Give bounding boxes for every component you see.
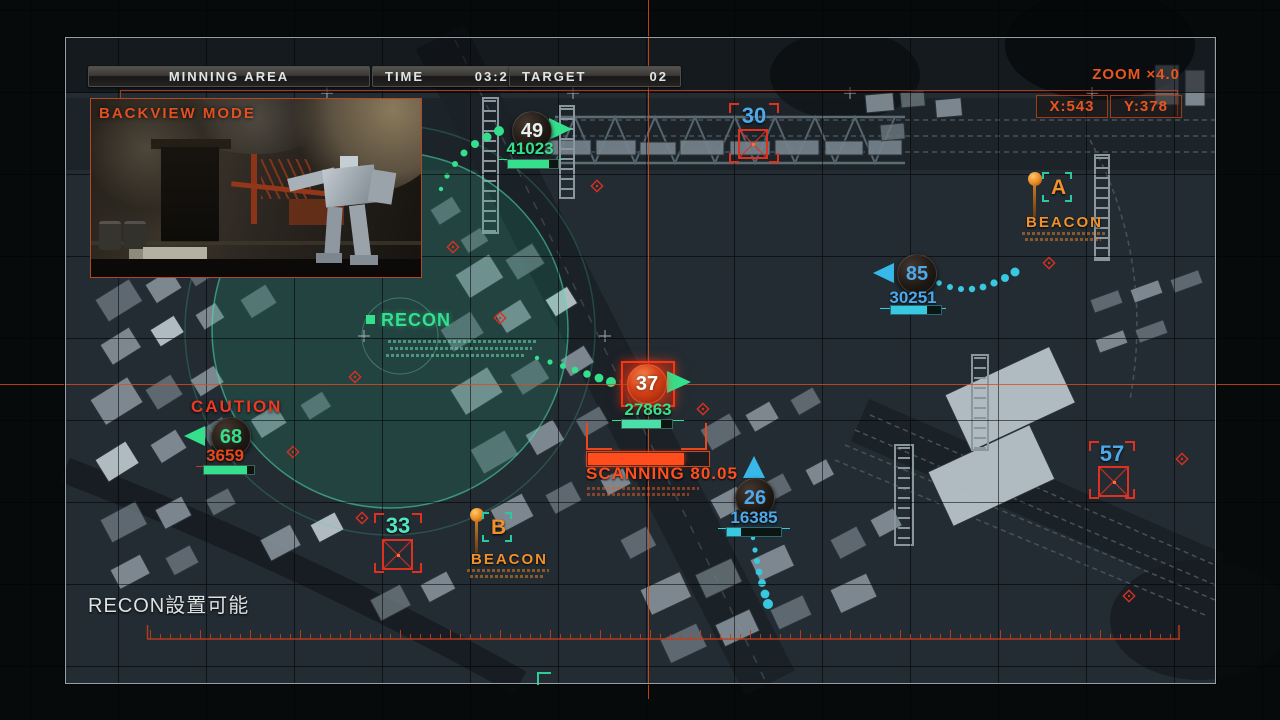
target-marker-33: 33: [374, 513, 422, 573]
fineprint: [390, 347, 532, 350]
target-number: 33: [374, 515, 422, 537]
fineprint: [1025, 238, 1101, 241]
status-message: RECON設置可能: [88, 589, 249, 618]
game-screen: { "header": { "area": "MINNING AREA", "t…: [0, 0, 1280, 720]
target-count: 02: [650, 69, 668, 84]
unit-gauge: [203, 465, 255, 475]
area-title-bar: MINNING AREA: [88, 66, 370, 87]
fineprint: [467, 569, 549, 572]
time-bar: TIME 03:20: [372, 66, 531, 87]
beacon-label: BEACON: [1026, 214, 1103, 231]
target-x-icon: [1098, 466, 1129, 497]
fineprint: [386, 354, 524, 357]
zoom-level-label: ZOOM ×4.0: [1058, 66, 1180, 83]
direction-flag-left-icon: [873, 263, 894, 283]
target-label: TARGET: [522, 69, 586, 84]
unit-number: 26: [744, 487, 766, 510]
target-bar: TARGET 02: [509, 66, 681, 87]
scan-bracket-right: [681, 423, 707, 450]
unit-gauge: [726, 527, 782, 537]
crosshair-vertical: [648, 0, 649, 699]
beacon-pin-stem: [475, 521, 478, 553]
direction-flag-up-icon: [743, 456, 765, 478]
fineprint: [470, 575, 544, 578]
direction-flag-right-icon: [549, 118, 572, 140]
beacon-letter: B: [491, 517, 506, 538]
direction-flag-left-icon: [184, 426, 205, 446]
recon-label: RECON: [381, 310, 451, 331]
unit-value: 27863: [612, 401, 684, 421]
unit-gauge: [890, 305, 942, 315]
beacon-pin-icon: [1028, 172, 1042, 186]
scanning-label: SCANNING 80.05: [586, 464, 738, 484]
target-marker-30: 30: [729, 103, 779, 163]
unit-number: 37: [636, 373, 658, 396]
unit-gauge: [621, 419, 673, 429]
unit-value: 16385: [718, 509, 790, 529]
area-name: MINNING AREA: [169, 69, 289, 84]
unit-gauge: [507, 159, 559, 169]
cursor-y-readout: Y:378: [1110, 95, 1182, 118]
fineprint: [388, 340, 538, 343]
top-ruler-line: [120, 90, 1178, 91]
beacon-letter: A: [1051, 177, 1066, 198]
beacon-pin-stem: [1033, 185, 1036, 217]
target-x-icon: [738, 129, 768, 159]
backview-title: BACKVIEW MODE: [99, 105, 256, 122]
mech: [302, 151, 407, 269]
crane-mast: [251, 154, 257, 224]
time-label: TIME: [385, 69, 424, 84]
barrel: [99, 221, 121, 250]
cursor-x-readout: X:543: [1036, 95, 1108, 118]
direction-flag-right-icon: [667, 371, 691, 393]
unit-number: 85: [906, 263, 928, 286]
target-number: 30: [729, 105, 779, 127]
unit-value: 41023: [498, 140, 562, 160]
placement-bracket-icon: [537, 672, 551, 685]
target-number: 57: [1089, 443, 1135, 465]
fineprint: [587, 487, 699, 490]
scan-bracket-left: [586, 423, 612, 450]
beacon-label: BEACON: [471, 551, 548, 568]
barrel: [124, 221, 146, 250]
target-marker-57: 57: [1089, 441, 1135, 499]
unit-marker-37: 37: [627, 364, 667, 404]
fineprint: [587, 493, 689, 496]
backview-panel: BACKVIEW MODE: [90, 98, 422, 278]
recon-bullet-icon: [366, 315, 375, 324]
watch-tower: [161, 147, 219, 242]
fineprint: [1022, 232, 1106, 235]
caution-label: CAUTION: [191, 397, 282, 417]
target-x-icon: [382, 539, 413, 570]
unit-value: 3659: [196, 447, 254, 467]
